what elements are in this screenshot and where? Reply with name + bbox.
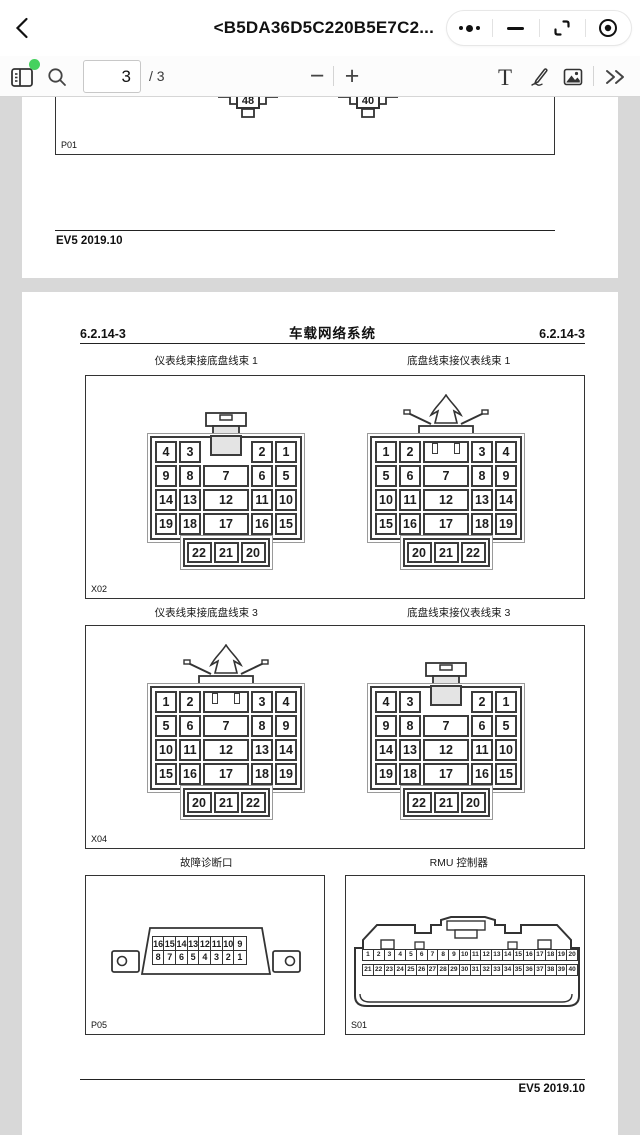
figure3-captions: 故障诊断口 RMU 控制器 xyxy=(80,855,585,870)
pin-cell xyxy=(423,691,469,713)
footer-rule xyxy=(55,230,555,231)
pin-cell: 8 xyxy=(179,465,201,487)
pin-cell: 10 xyxy=(375,489,397,511)
pin-cell: 4 xyxy=(375,691,397,713)
figure2-captions: 仪表线束接底盘线束 3 底盘线束接仪表线束 3 xyxy=(80,605,585,620)
pin-cell: 12 xyxy=(203,489,249,511)
header-rule xyxy=(80,343,585,344)
pin-cell: 10 xyxy=(495,739,517,761)
pin-cell: 7 xyxy=(423,715,469,737)
caption: 仪表线束接底盘线束 1 xyxy=(80,353,333,368)
toolbar-divider xyxy=(593,66,594,86)
pin-cell: 11 xyxy=(251,489,273,511)
pin-cell: 19 xyxy=(495,513,517,535)
search-button[interactable] xyxy=(44,64,70,90)
pin-cell: 4 xyxy=(275,691,297,713)
caption: 底盘线束接仪表线束 1 xyxy=(333,353,586,368)
pin-cell: 18 xyxy=(471,513,493,535)
pin-cell: 18 xyxy=(399,763,421,785)
text-tool-button[interactable]: T xyxy=(492,64,518,90)
pin-cell: 7 xyxy=(203,465,249,487)
pin-cell: 22 xyxy=(241,792,266,813)
connector-p05: 161514131211109 87654321 xyxy=(106,924,306,994)
pin-cell: 6 xyxy=(179,715,201,737)
pin-cell: 16 xyxy=(251,513,273,535)
pin-row: 1413121110 xyxy=(375,739,517,761)
pin-cell: 9 xyxy=(155,465,177,487)
pin-cell: 14 xyxy=(155,489,177,511)
window-capsule xyxy=(446,10,632,46)
pin-cell: 22 xyxy=(407,792,432,813)
pin-cell: 18 xyxy=(251,763,273,785)
zoom-in-button[interactable]: + xyxy=(338,62,366,90)
pin-cell: 16 xyxy=(471,763,493,785)
pin-count-label: 48 xyxy=(236,97,260,109)
page-footer: EV5 2019.10 xyxy=(56,235,123,247)
pin-row: 1516171819 xyxy=(155,763,297,785)
pin-row: 1918171615 xyxy=(155,513,297,535)
page-header: 6.2.14-3 车载网络系统 6.2.14-3 xyxy=(80,322,585,342)
pen-tool-button[interactable] xyxy=(526,64,552,90)
close-button[interactable] xyxy=(586,11,631,45)
more-menu-button[interactable] xyxy=(447,11,492,45)
pin-cell: 3 xyxy=(251,691,273,713)
pin-cell: 10 xyxy=(155,739,177,761)
pin-cell: 13 xyxy=(251,739,273,761)
page-total-label: / 3 xyxy=(149,68,165,84)
footer-rule xyxy=(80,1079,585,1080)
pin-cell: 5 xyxy=(155,715,177,737)
pin-cell: 2 xyxy=(251,441,273,463)
page-footer: EV5 2019.10 xyxy=(518,1083,585,1095)
pin-cell: 7 xyxy=(423,465,469,487)
minus-icon xyxy=(507,27,524,30)
figure-label: S01 xyxy=(351,1020,367,1030)
pin-row: 1516171819 xyxy=(375,513,517,535)
pin-row: 1918171615 xyxy=(375,763,517,785)
pdf-page-3[interactable]: 6.2.14-3 车载网络系统 6.2.14-3 仪表线束接底盘线束 1 底盘线… xyxy=(22,292,618,1135)
pin-cell: 17 xyxy=(203,513,249,535)
pin-cell: 5 xyxy=(495,715,517,737)
app-window: <B5DA36D5C220B5E7C2... xyxy=(0,0,640,1135)
picture-icon xyxy=(562,66,584,88)
pdf-page-2[interactable]: P01 48 40 EV5 2019.10 xyxy=(22,97,618,278)
pin-cell: 15 xyxy=(155,763,177,785)
figure1-captions: 仪表线束接底盘线束 1 底盘线束接仪表线束 1 xyxy=(80,353,585,368)
pdf-toolbar: / 3 − + T xyxy=(0,56,640,97)
pin-cell: 13 xyxy=(179,489,201,511)
connector-x02-left: 43219876514131211101918171615 222120 xyxy=(146,412,306,567)
pin-cell: 18 xyxy=(179,513,201,535)
pin-cell: 13 xyxy=(399,739,421,761)
text-tool-icon: T xyxy=(498,66,512,89)
pin-cell: 12 xyxy=(423,489,469,511)
image-tool-button[interactable] xyxy=(560,64,586,90)
pin-row: 1413121110 xyxy=(155,489,297,511)
pin-row: 98765 xyxy=(155,465,297,487)
connector-x02-right: 12345678910111213141516171819 202122 xyxy=(366,394,526,567)
pin-cell: 11 xyxy=(179,739,201,761)
pin-cell: 8 xyxy=(471,465,493,487)
pin-cell: 9 xyxy=(495,465,517,487)
nav-bar: <B5DA36D5C220B5E7C2... xyxy=(0,0,640,56)
pin-cell: 13 xyxy=(471,489,493,511)
connector-x04-left: 12345678910111213141516171819 202122 xyxy=(146,644,306,817)
zoom-out-button[interactable]: − xyxy=(303,62,331,90)
pin-cell: 14 xyxy=(275,739,297,761)
connector-tab-48: 48 xyxy=(216,97,280,121)
figure-box-p01: P01 xyxy=(55,97,555,155)
pin-row: 1234 xyxy=(155,691,297,713)
pin-count-label: 40 xyxy=(356,97,380,109)
minus-glyph: − xyxy=(310,64,325,89)
float-window-button[interactable] xyxy=(540,11,585,45)
connector-s01: 1234567891011121314151617181920 21222324… xyxy=(351,908,581,1013)
figure-label: X04 xyxy=(91,834,107,844)
caption: 仪表线束接底盘线束 3 xyxy=(80,605,333,620)
pin-row: 1011121314 xyxy=(155,739,297,761)
caption: 故障诊断口 xyxy=(80,855,333,870)
pin-cell: 14 xyxy=(495,489,517,511)
pin-cell: 17 xyxy=(203,763,249,785)
plus-glyph: + xyxy=(345,64,360,89)
pin-cell: 4 xyxy=(155,441,177,463)
pin-cell: 17 xyxy=(423,513,469,535)
pin-cell: 21 xyxy=(214,542,239,563)
caption: RMU 控制器 xyxy=(333,855,586,870)
pencil-icon xyxy=(528,66,550,88)
pin-cell: 1 xyxy=(275,441,297,463)
pin-cell: 3 xyxy=(399,691,421,713)
pin-cell: 17 xyxy=(423,763,469,785)
pin-cell: 2 xyxy=(399,441,421,463)
pin-cell: 22 xyxy=(187,542,212,563)
pin-row: 56789 xyxy=(375,465,517,487)
pin-cell: 10 xyxy=(275,489,297,511)
pin-cell: 16 xyxy=(399,513,421,535)
pin-cell: 15 xyxy=(275,513,297,535)
page-title: 车载网络系统 xyxy=(289,322,376,342)
pin-cell xyxy=(203,441,249,463)
pin-cell: 19 xyxy=(155,513,177,535)
pin-cell: 20 xyxy=(187,792,212,813)
pin-cell: 20 xyxy=(566,949,578,961)
pin-cell: 2 xyxy=(179,691,201,713)
pin-cell: 5 xyxy=(275,465,297,487)
pin-cell: 6 xyxy=(471,715,493,737)
pin-cell: 8 xyxy=(251,715,273,737)
pin-row: 4321 xyxy=(375,691,517,713)
pin-cell: 15 xyxy=(495,763,517,785)
pin-cell: 21 xyxy=(434,792,459,813)
pin-cell: 9 xyxy=(375,715,397,737)
thumbnails-button[interactable] xyxy=(8,63,36,91)
figure-box-p05: 161514131211109 87654321 P05 xyxy=(85,875,325,1035)
connector-tab-40: 40 xyxy=(336,97,400,121)
pin-cell: 16 xyxy=(179,763,201,785)
figure-label: X02 xyxy=(91,584,107,594)
pin-cell: 40 xyxy=(566,964,578,976)
pin-cell: 19 xyxy=(375,763,397,785)
section-number-left: 6.2.14-3 xyxy=(80,327,126,341)
pin-cell: 12 xyxy=(203,739,249,761)
pin-row: 98765 xyxy=(375,715,517,737)
page-number-input[interactable] xyxy=(83,60,141,93)
pin-cell: 6 xyxy=(251,465,273,487)
figure-box-s01: 1234567891011121314151617181920 21222324… xyxy=(345,875,585,1035)
pin-cell: 11 xyxy=(399,489,421,511)
pin-cell: 1 xyxy=(495,691,517,713)
pin-cell: 15 xyxy=(375,513,397,535)
pin-cell: 2 xyxy=(471,691,493,713)
three-dots-icon xyxy=(459,25,480,32)
pin-cell: 8 xyxy=(399,715,421,737)
pin-cell: 20 xyxy=(461,792,486,813)
double-chevron-right-icon xyxy=(603,68,627,86)
pin-row: 1011121314 xyxy=(375,489,517,511)
more-tools-button[interactable] xyxy=(600,64,630,90)
pin-cell: 11 xyxy=(471,739,493,761)
pin-cell: 9 xyxy=(275,715,297,737)
connector-x04-right: 43219876514131211101918171615 222120 xyxy=(366,662,526,817)
pin-cell: 5 xyxy=(375,465,397,487)
pin-row: 1234 xyxy=(375,441,517,463)
back-button[interactable] xyxy=(0,0,46,56)
pin-cell: 19 xyxy=(275,763,297,785)
document-title: <B5DA36D5C220B5E7C2... xyxy=(214,18,434,38)
pin-row: 4321 xyxy=(155,441,297,463)
pin-cell: 4 xyxy=(495,441,517,463)
pin-cell xyxy=(203,691,249,713)
pin-cell: 20 xyxy=(241,542,266,563)
section-number-right: 6.2.14-3 xyxy=(539,327,585,341)
search-icon xyxy=(46,66,68,88)
pin-cell: 1 xyxy=(155,691,177,713)
caption: 底盘线束接仪表线束 3 xyxy=(333,605,586,620)
pin-cell: 1 xyxy=(375,441,397,463)
circle-dot-icon xyxy=(598,18,618,38)
status-badge xyxy=(29,59,40,70)
pin-cell: 12 xyxy=(423,739,469,761)
pin-cell: 1 xyxy=(233,950,246,965)
pin-cell: 21 xyxy=(214,792,239,813)
pin-row: 56789 xyxy=(155,715,297,737)
figure-label: P05 xyxy=(91,1020,107,1030)
minimize-button[interactable] xyxy=(493,11,538,45)
pin-cell: 22 xyxy=(461,542,486,563)
pin-cell: 14 xyxy=(375,739,397,761)
figure-box-x04: 12345678910111213141516171819 202122 432… xyxy=(85,625,585,849)
pin-cell: 3 xyxy=(179,441,201,463)
float-window-icon xyxy=(553,19,571,37)
pin-cell: 3 xyxy=(471,441,493,463)
toolbar-divider xyxy=(333,66,334,86)
pin-cell: 7 xyxy=(203,715,249,737)
pin-cell: 21 xyxy=(434,542,459,563)
chevron-left-icon xyxy=(12,17,34,39)
pin-cell: 6 xyxy=(399,465,421,487)
figure-box-x02: 43219876514131211101918171615 222120 123… xyxy=(85,375,585,599)
figure-label: P01 xyxy=(61,140,77,150)
pin-cell xyxy=(423,441,469,463)
pin-cell: 20 xyxy=(407,542,432,563)
